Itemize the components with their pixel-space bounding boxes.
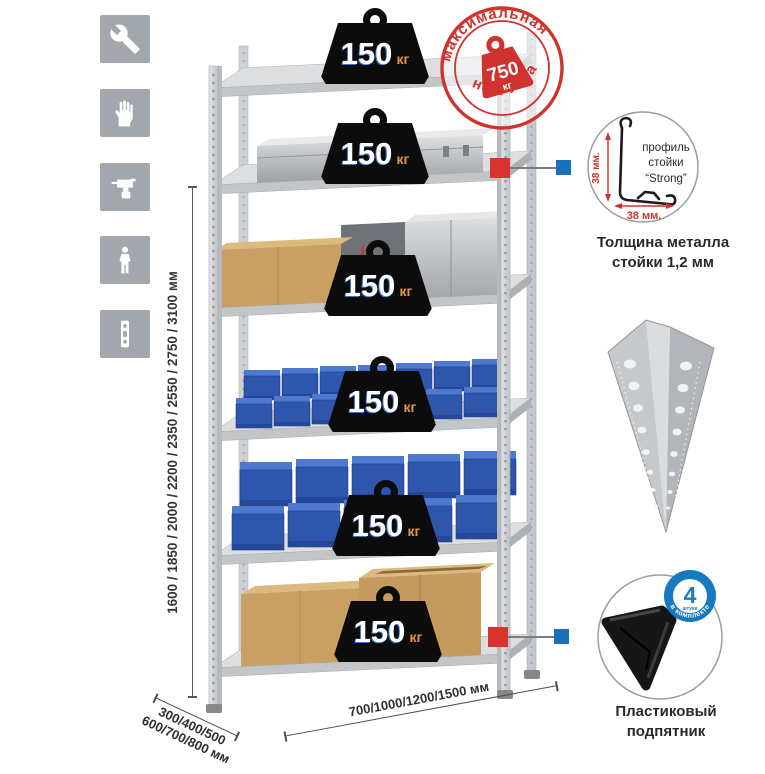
profile-label-line2: стойки bbox=[648, 157, 683, 169]
foot-caption: Пластиковый подпятник bbox=[592, 702, 740, 741]
profile-label-line1: профиль bbox=[642, 142, 690, 154]
drill-feature-tile bbox=[100, 163, 150, 211]
shelf-load-weight: 150кг bbox=[330, 480, 442, 556]
shelf-load-weight: 150кг bbox=[322, 240, 434, 316]
foot-callout-line bbox=[506, 636, 556, 638]
gloves-icon bbox=[109, 97, 141, 129]
shelf-load-weight: 150кг bbox=[326, 356, 438, 432]
load-unit: кг bbox=[403, 399, 416, 415]
load-value: 150 bbox=[341, 36, 393, 72]
load-value: 150 bbox=[348, 384, 400, 420]
foot-caption-line2: подпятник bbox=[592, 722, 740, 742]
profile-callout-line bbox=[508, 167, 558, 169]
shelf-load-weight: 150кг bbox=[319, 108, 431, 184]
height-dimension-label: 1600 / 1850 / 2000 / 2200 / 2350 / 2550 … bbox=[165, 185, 180, 700]
badge-sub-label: штуки bbox=[682, 606, 697, 612]
shelf-load-weight: 150кг bbox=[332, 586, 444, 662]
badge-number: 4 bbox=[684, 582, 697, 608]
profile-caption-line2: стойки 1,2 мм bbox=[578, 253, 748, 273]
load-value: 150 bbox=[344, 268, 396, 304]
load-unit: кг bbox=[396, 51, 409, 67]
load-value: 150 bbox=[341, 136, 393, 172]
max-load-stamp: максимальная нагрузка 750 кг bbox=[436, 2, 568, 134]
quantity-badge: 4 штуки в комплекте bbox=[664, 570, 716, 622]
shelf-load-weight: 150кг bbox=[319, 8, 431, 84]
load-unit: кг bbox=[396, 151, 409, 167]
drill-icon bbox=[109, 171, 141, 203]
profile-callout-target-marker bbox=[556, 160, 571, 175]
foot-callout-source-marker bbox=[488, 627, 508, 647]
plastic-foot-detail: 4 штуки в комплекте bbox=[594, 566, 734, 706]
person-icon bbox=[109, 244, 141, 276]
foot-callout-target-marker bbox=[554, 629, 569, 644]
profile-dim-vertical-label: 38 мм. bbox=[591, 152, 602, 184]
profile-dim-horizontal-label: 38 мм. bbox=[627, 210, 662, 222]
load-value: 150 bbox=[352, 508, 404, 544]
load-unit: кг bbox=[407, 523, 420, 539]
angle-post-illustration bbox=[590, 300, 740, 550]
assembly-feature-tile bbox=[100, 15, 150, 63]
level-feature-tile bbox=[100, 310, 150, 358]
level-icon bbox=[109, 318, 141, 350]
height-dimension-line bbox=[192, 187, 193, 697]
profile-label-line3: “Strong” bbox=[645, 173, 687, 185]
load-unit: кг bbox=[409, 629, 422, 645]
foot-caption-line1: Пластиковый bbox=[592, 702, 740, 722]
person-feature-tile bbox=[100, 236, 150, 284]
profile-label: профиль стойки “Strong” bbox=[642, 142, 690, 185]
profile-caption: Толщина металла стойки 1,2 мм bbox=[578, 233, 748, 272]
gloves-feature-tile bbox=[100, 89, 150, 137]
load-unit: кг bbox=[399, 283, 412, 299]
load-value: 150 bbox=[354, 614, 406, 650]
wrench-icon bbox=[109, 23, 141, 55]
post-profile-detail: 38 мм. 38 мм. профиль стойки “Strong” bbox=[578, 102, 708, 232]
profile-callout-source-marker bbox=[490, 158, 510, 178]
profile-caption-line1: Толщина металла bbox=[578, 233, 748, 253]
